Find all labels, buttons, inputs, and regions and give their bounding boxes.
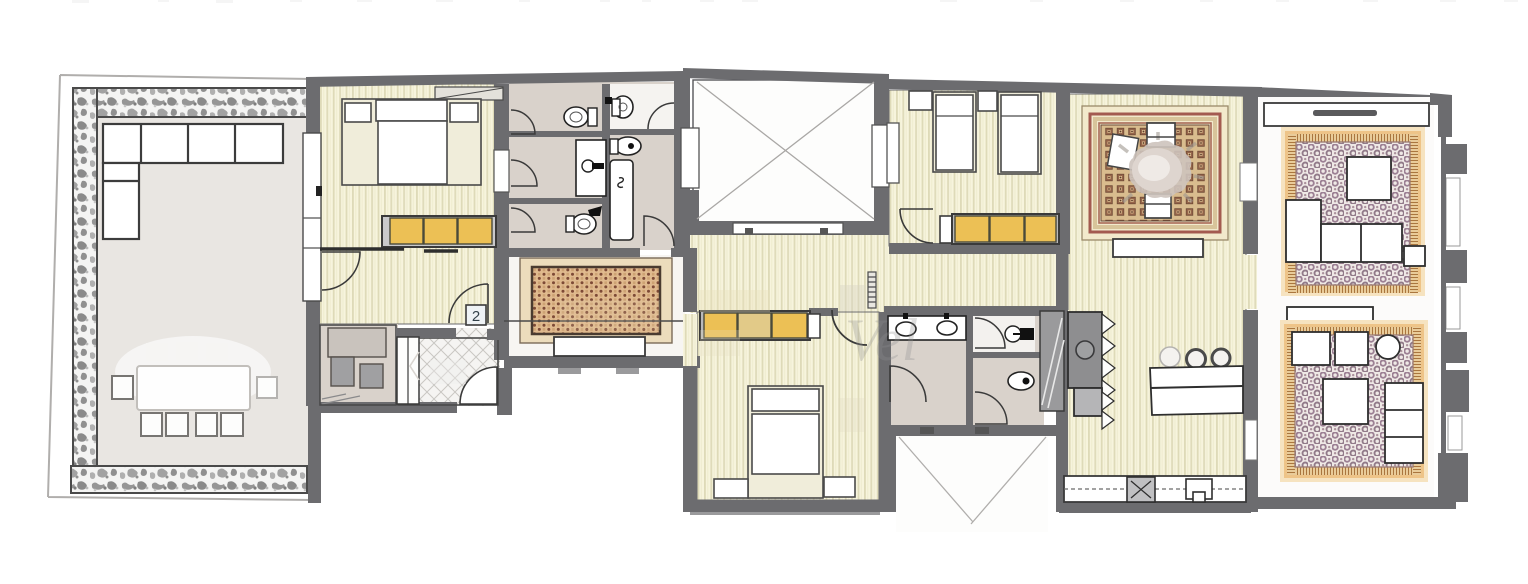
svg-text:2: 2: [472, 308, 480, 325]
svg-text:Vel: Vel: [845, 307, 918, 373]
